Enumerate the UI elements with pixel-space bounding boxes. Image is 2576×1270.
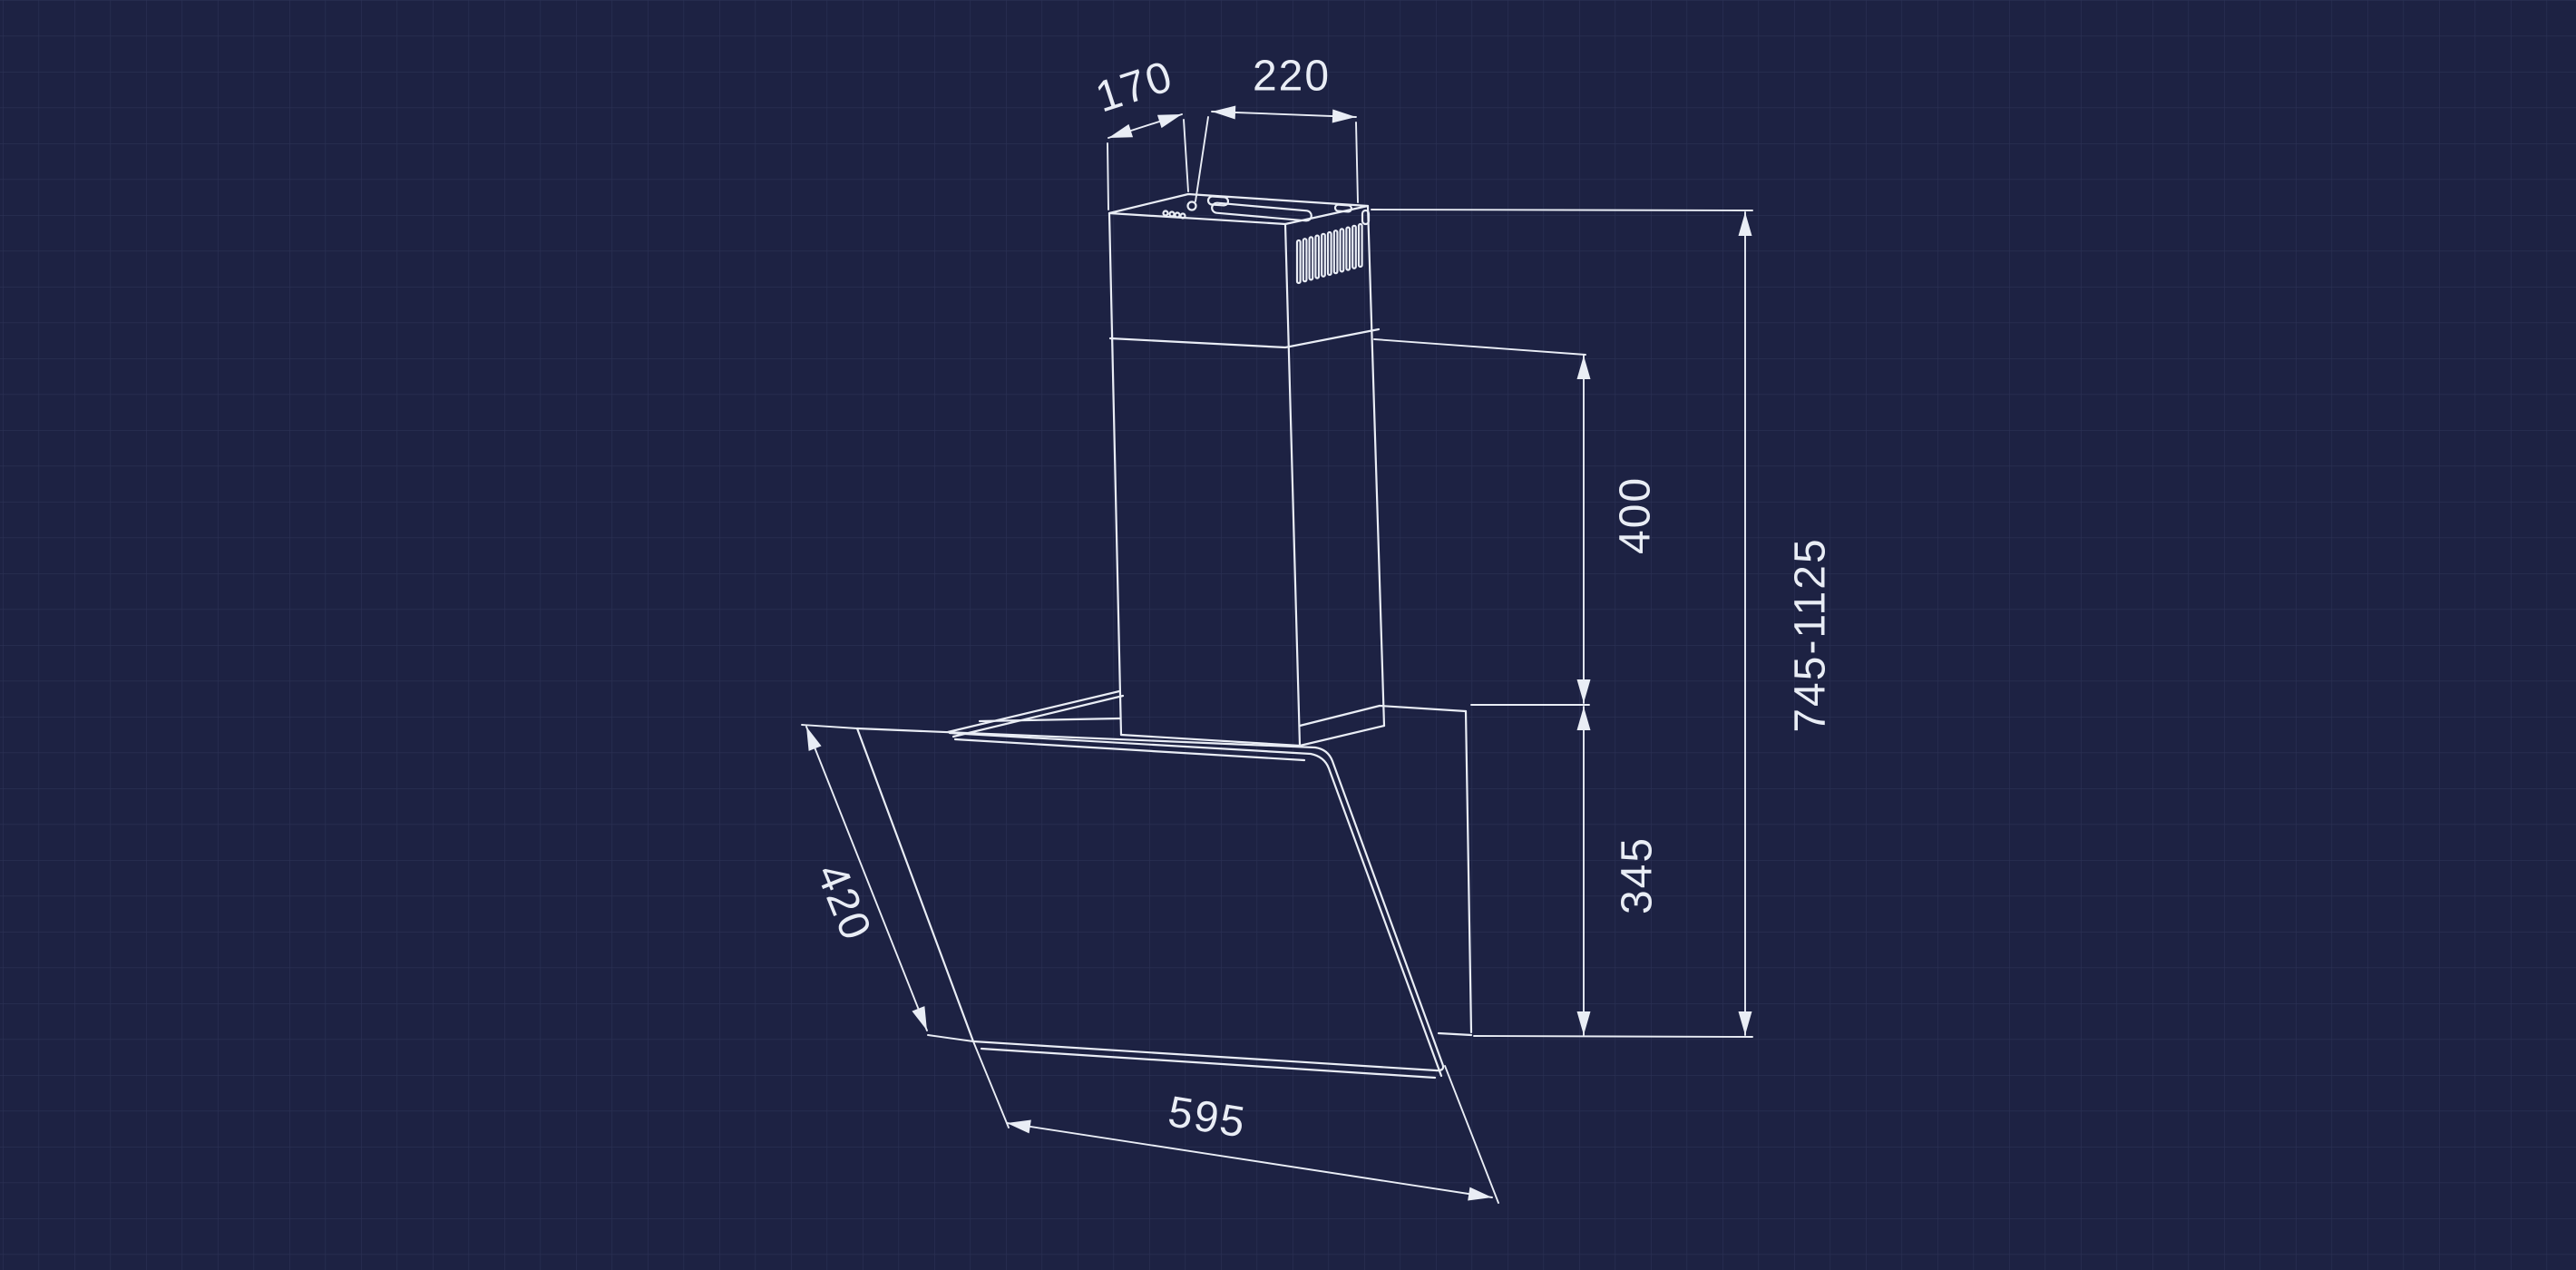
dim-label-duct-section-height: 400 [1612, 476, 1660, 554]
extension-line [1107, 143, 1108, 210]
technical-drawing: 170 220 400 345 745-1125 420 595 [0, 0, 2576, 1270]
blueprint-canvas: 170 220 400 345 745-1125 420 595 [0, 0, 2576, 1270]
dim-label-body-height: 345 [1614, 836, 1662, 914]
extension-line [1474, 1036, 1752, 1037]
grid-lines [0, 0, 2576, 1270]
dim-label-total-height: 745-1125 [1787, 537, 1835, 732]
extension-line [1371, 210, 1752, 210]
dim-label-chimney-top-width: 220 [1253, 53, 1331, 101]
